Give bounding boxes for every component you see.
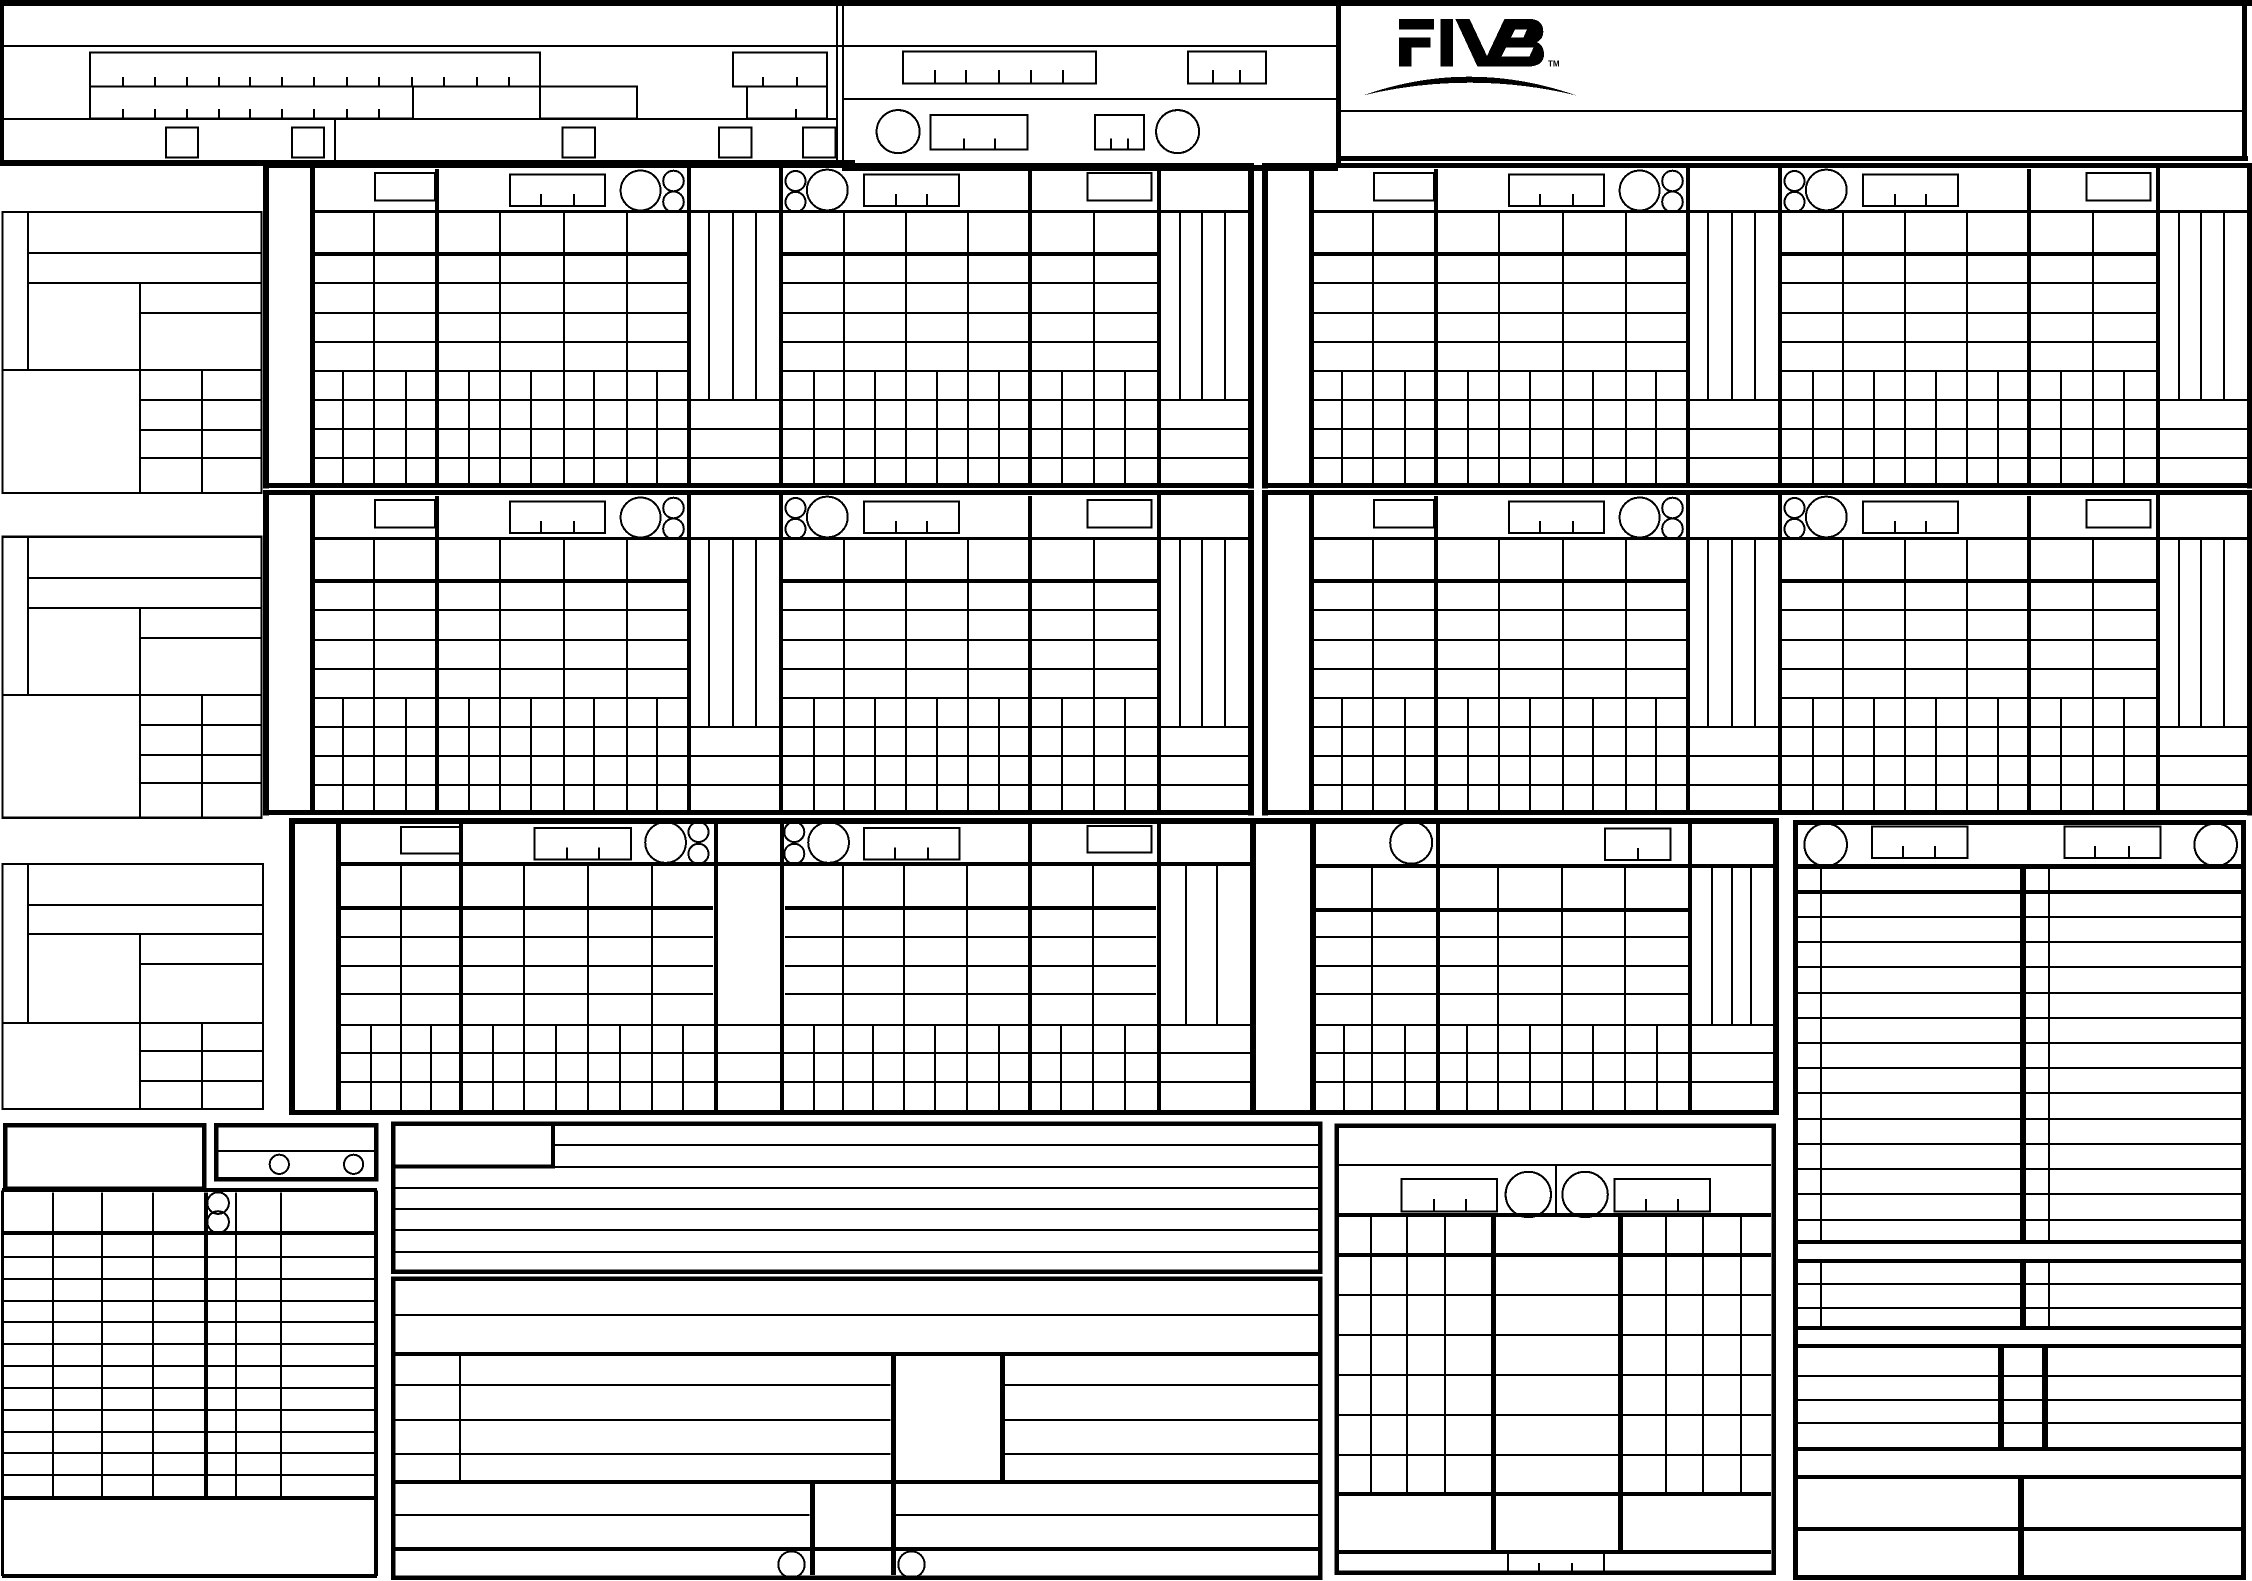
svg-text:TM: TM	[1548, 60, 1560, 69]
